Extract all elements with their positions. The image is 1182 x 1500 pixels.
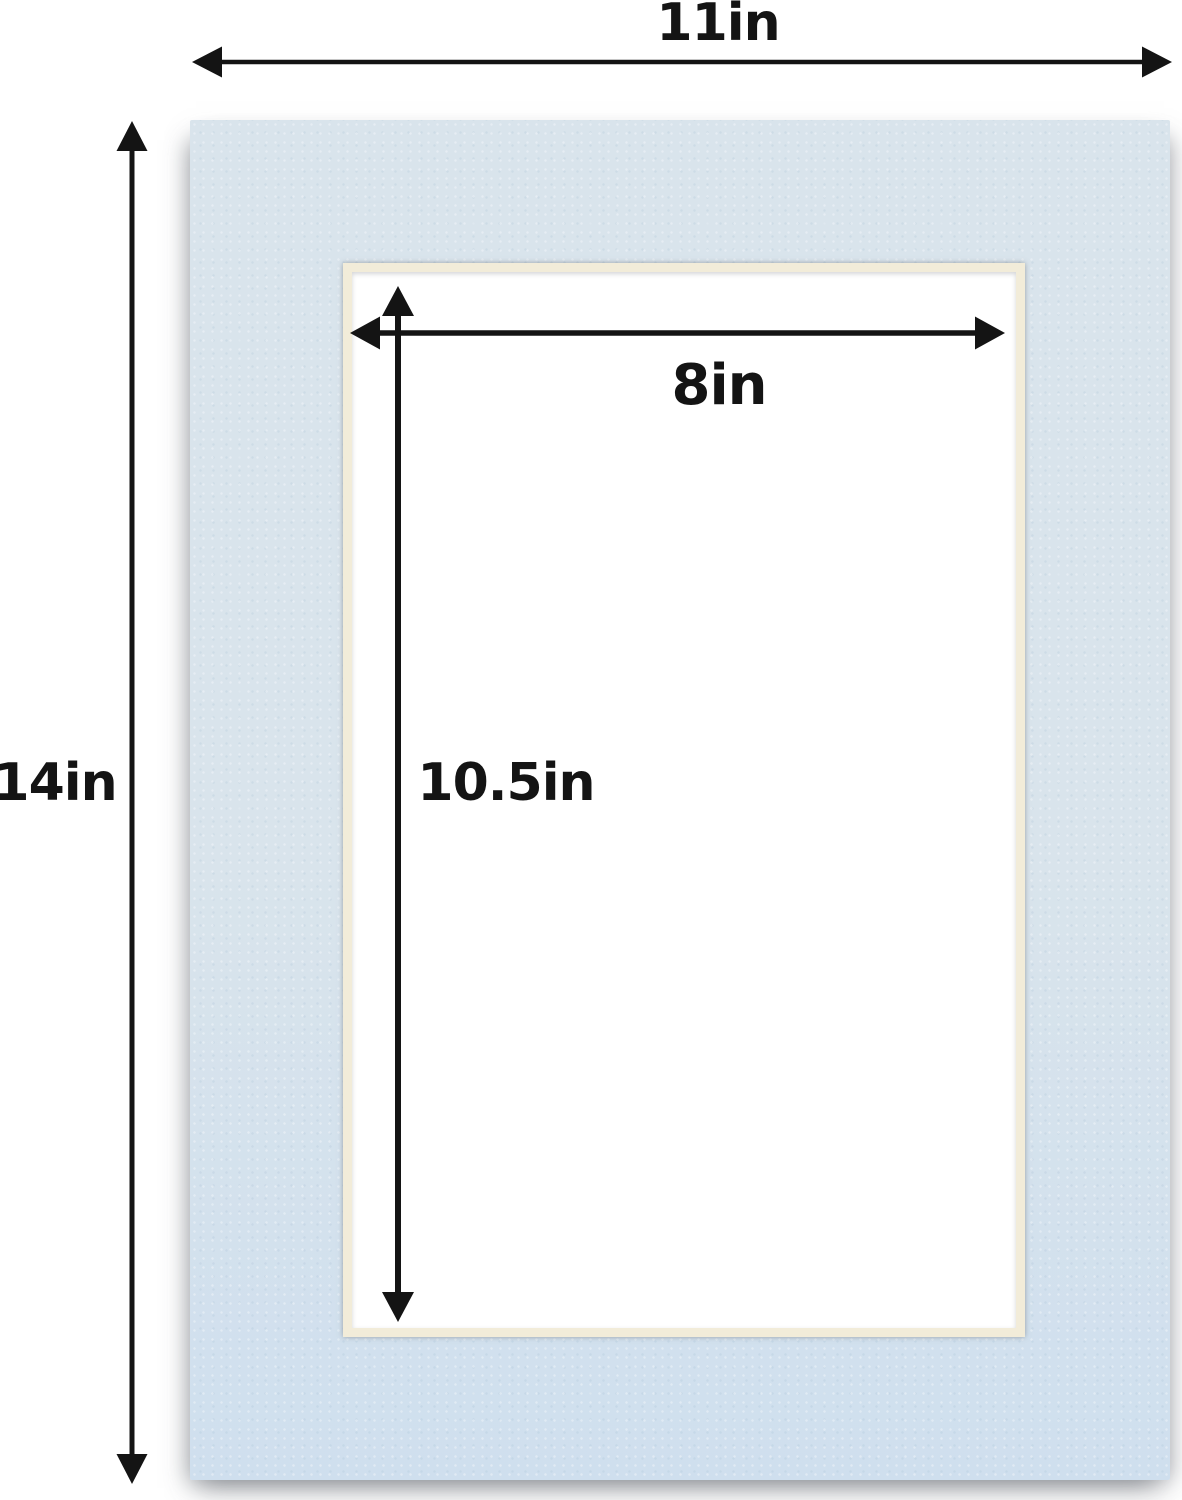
opening-height-label: 10.5in [356, 748, 656, 818]
outer-width-label: 11in [568, 0, 868, 58]
mat-board [190, 120, 1170, 1480]
outer-height-label: 14in [0, 748, 205, 818]
diagram-canvas: 11in 14in 8in 10.5in [0, 0, 1182, 1500]
opening-width-label: 8in [569, 350, 869, 420]
